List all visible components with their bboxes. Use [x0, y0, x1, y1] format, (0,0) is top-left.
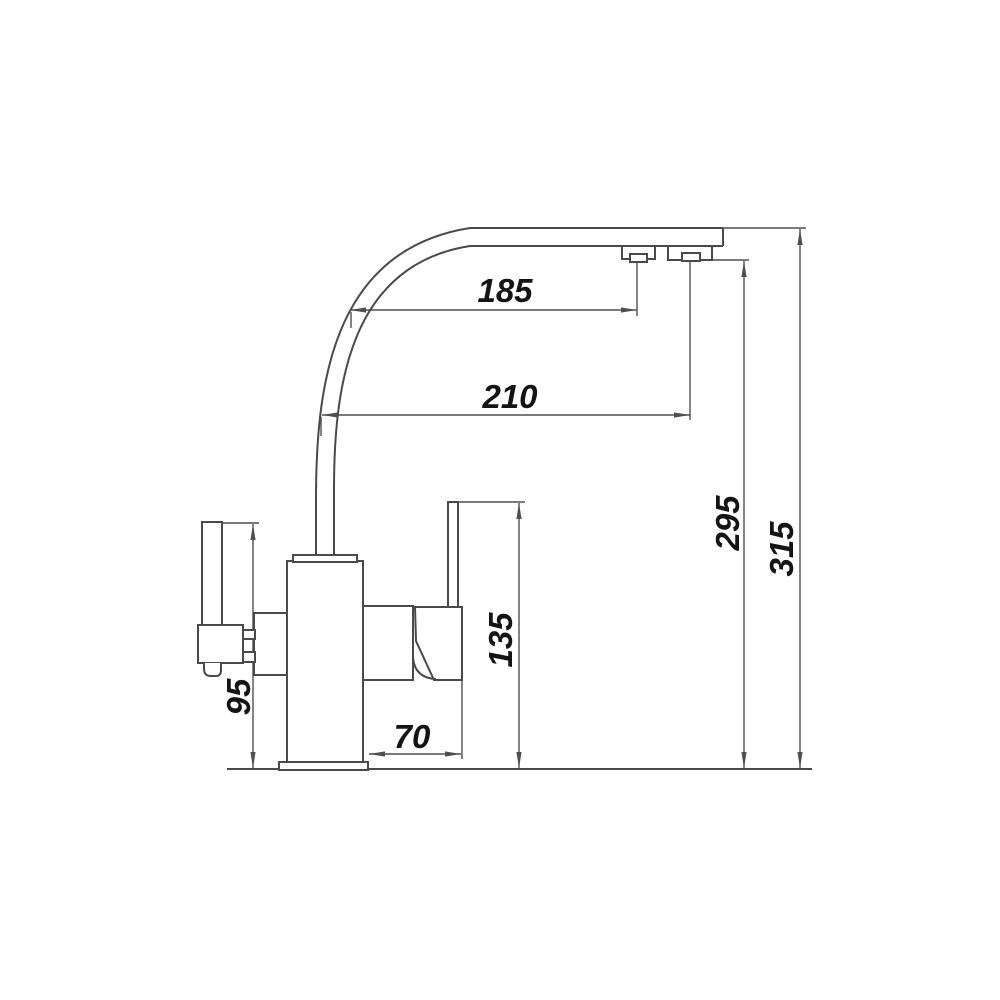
valve-neck-lower: [243, 652, 255, 662]
dimension-label-spout-reach-filter: 185: [477, 272, 533, 309]
filter-handle-lever: [202, 522, 222, 625]
filter-valve-foot: [204, 663, 221, 676]
main-outlet-nozzle: [668, 246, 712, 261]
mixer-handle-assembly: [363, 502, 462, 680]
dimension-label-spout-reach-main: 210: [481, 378, 538, 415]
dimension-label-filter-handle-height: 95: [220, 678, 257, 715]
mixer-handle-body: [415, 607, 462, 680]
body-top-collar: [293, 555, 357, 562]
faucet-dimension-drawing: 185 210 295 315 135 95 70: [0, 0, 1000, 1000]
dimension-spout-reach-filter: 185: [350, 262, 637, 328]
nozzle-tip: [630, 254, 647, 262]
valve-neck-upper: [243, 630, 255, 639]
dimension-label-overall-height: 315: [763, 521, 800, 577]
body-right-port: [363, 606, 413, 680]
dimension-label-mixer-handle-height: 135: [482, 612, 519, 668]
dimension-body-offset: 70: [369, 680, 462, 759]
filter-outlet-nozzle: [622, 246, 655, 262]
mixer-handle-lever: [448, 502, 458, 607]
base-flange: [279, 762, 368, 770]
nozzle-tip: [682, 253, 700, 261]
body-column: [287, 561, 363, 762]
dimension-label-body-offset: 70: [394, 718, 431, 755]
dimension-label-outlet-height: 295: [709, 495, 746, 552]
faucet-body: [279, 555, 368, 770]
dimension-mixer-handle-height: 135: [458, 502, 525, 768]
filter-handle-assembly: [198, 522, 287, 676]
dimension-outlet-height: 295: [709, 260, 749, 768]
body-left-port: [254, 613, 287, 675]
filter-valve-block: [198, 625, 243, 663]
